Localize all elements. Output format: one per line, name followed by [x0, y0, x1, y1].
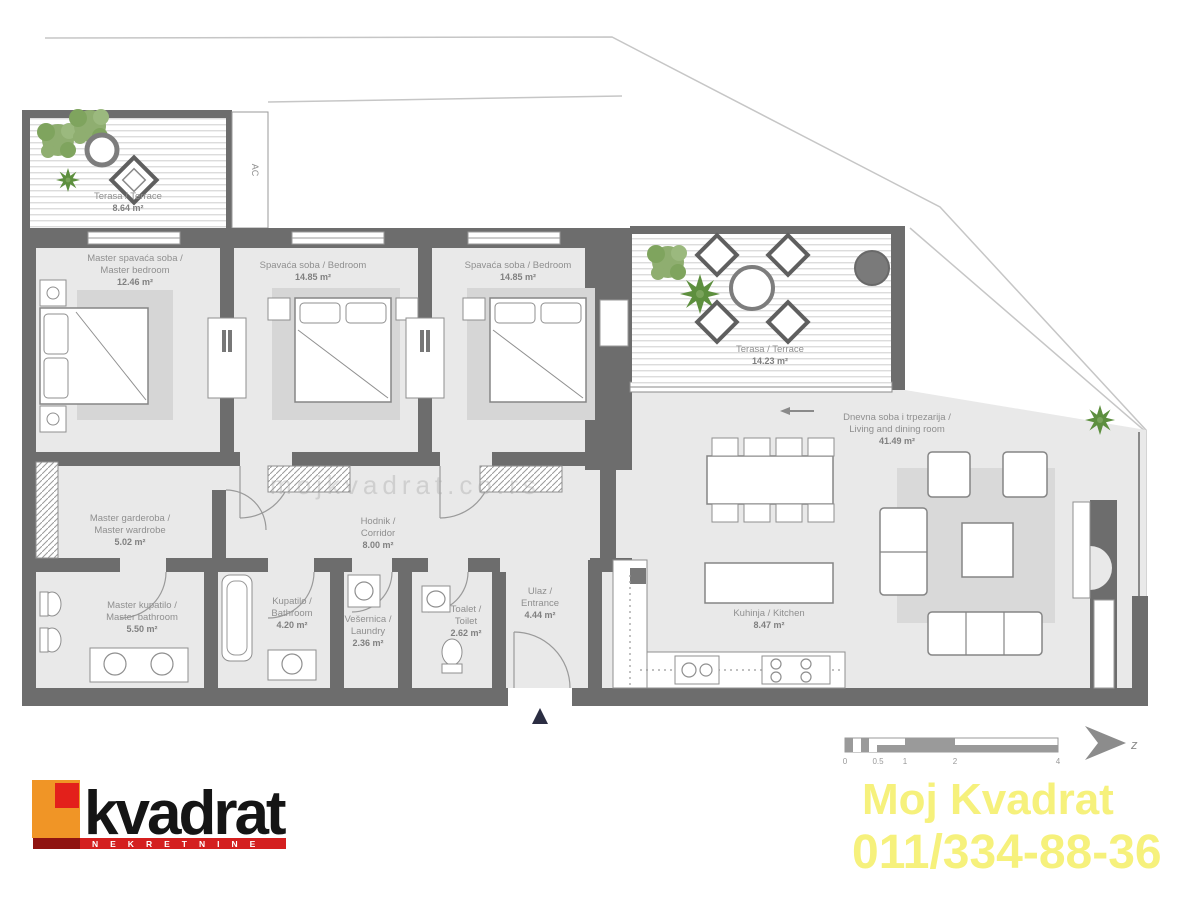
plant-icon: [1085, 405, 1115, 435]
round-table-icon: [855, 251, 889, 285]
bedroom-2-area: 14.85 m²: [295, 272, 331, 282]
corridor-label-1: Hodnik /: [361, 516, 396, 527]
bedroom-2-label: Spavaća soba / Bedroom: [260, 260, 367, 271]
master-wardrobe-label-1: Master garderoba /: [90, 513, 171, 524]
terrace-top-label: Terasa / Terrace: [94, 191, 162, 202]
logo-tagline: NEKRETNINE: [92, 839, 267, 849]
terrace-top: Terasa / Terrace 8.64 m²: [22, 109, 232, 232]
scale-tick-1: 1: [903, 757, 908, 766]
nightstand-icon: [268, 298, 290, 320]
coffee-table-icon: [962, 523, 1013, 577]
double-sink-icon: [90, 648, 188, 682]
terrace-main-label: Terasa / Terrace: [736, 344, 804, 355]
dining-table-icon: [707, 438, 834, 522]
bathroom-area: 4.20 m²: [276, 620, 307, 630]
scale-tick-0: 0: [843, 757, 848, 766]
scale-tick-4: 4: [1056, 757, 1061, 766]
terrace-table-icon: [87, 135, 117, 165]
agency-name: Moj Kvadrat: [862, 775, 1114, 824]
kitchen-sink-icon: [630, 568, 646, 584]
corridor-area: 8.00 m²: [362, 540, 393, 550]
entrance-area: 4.44 m²: [524, 610, 555, 620]
entrance-label-2: Entrance: [521, 598, 559, 609]
washing-machine-icon: [348, 575, 380, 607]
ac-label: AC: [250, 164, 260, 177]
master-bedroom-label-1: Master spavaća soba /: [87, 253, 183, 264]
terrace-main-area: 14.23 m²: [752, 356, 788, 366]
nightstand-icon: [396, 298, 418, 320]
sink-icon: [675, 656, 719, 684]
bathroom-label-1: Kupatilo /: [272, 596, 312, 607]
logo-bar-dark-segment: [33, 838, 80, 849]
floorplan-drawing: Terasa / Terrace 8.64 m² AC: [0, 0, 1186, 900]
master-bathroom-area: 5.50 m²: [126, 624, 157, 634]
scale-tick-05: 0.5: [872, 757, 884, 766]
laundry-label-2: Laundry: [351, 626, 386, 637]
stove-icon: [762, 656, 830, 684]
agency-logo: kvadrat NEKRETNINE: [32, 779, 286, 849]
living-label-2: Living and dining room: [849, 424, 945, 435]
kitchen-label: Kuhinja / Kitchen: [733, 608, 804, 619]
master-bathroom-label-2: Master bathroom: [106, 612, 178, 623]
laundry-area: 2.36 m²: [352, 638, 383, 648]
floorplan-page: Terasa / Terrace 8.64 m² AC: [0, 0, 1186, 900]
terrace-top-area: 8.64 m²: [112, 203, 143, 213]
living-label-1: Dnevna soba i trpezarija /: [843, 412, 951, 423]
laundry-label-1: Vešernica /: [345, 614, 392, 625]
toilet-area: 2.62 m²: [450, 628, 481, 638]
nightstand-icon: [40, 406, 66, 432]
nightstand-icon: [463, 298, 485, 320]
master-wardrobe-label-2: Master wardrobe: [94, 525, 165, 536]
master-bedroom-label-2: Master bedroom: [100, 265, 169, 276]
watermark-text: mojkvadrat.co.rs: [270, 470, 541, 500]
window-icon: [88, 232, 560, 244]
master-bedroom-area: 12.46 m²: [117, 277, 153, 287]
terrace-table-icon: [731, 267, 773, 309]
logo-red-square: [55, 783, 79, 808]
bedroom-3-label: Spavaća soba / Bedroom: [465, 260, 572, 271]
sink-icon: [422, 586, 450, 612]
nightstand-icon: [40, 280, 66, 306]
bathroom-label-2: Bathroom: [271, 608, 312, 619]
corridor-label-2: Corridor: [361, 528, 395, 539]
agency-phone: 011/334-88-36: [852, 826, 1162, 879]
master-bathroom-label-1: Master kupatilo /: [107, 600, 177, 611]
terrace-main: Terasa / Terrace 14.23 m²: [632, 234, 891, 384]
entrance-label-1: Ulaz /: [528, 586, 553, 597]
ac-niche: AC: [232, 112, 268, 228]
tv-unit-icon: [1073, 502, 1090, 598]
plant-icon: [647, 245, 687, 280]
closet-icon: [208, 318, 246, 398]
logo-name: kvadrat: [84, 779, 286, 848]
compass-letter: z: [1130, 737, 1138, 752]
toilet-label-2: Toilet: [455, 616, 478, 627]
living-area: 41.49 m²: [879, 436, 915, 446]
bedroom-3-area: 14.85 m²: [500, 272, 536, 282]
sink-icon: [268, 650, 316, 680]
kitchen-area: 8.47 m²: [753, 620, 784, 630]
scale-tick-2: 2: [953, 757, 958, 766]
toilet-label-1: Toalet /: [451, 604, 482, 615]
master-wardrobe-area: 5.02 m²: [114, 537, 145, 547]
kitchen-island-icon: [705, 563, 833, 603]
toilet-icon: [442, 639, 462, 673]
wardrobe-icon: [36, 462, 58, 558]
closet-icon: [406, 318, 444, 398]
